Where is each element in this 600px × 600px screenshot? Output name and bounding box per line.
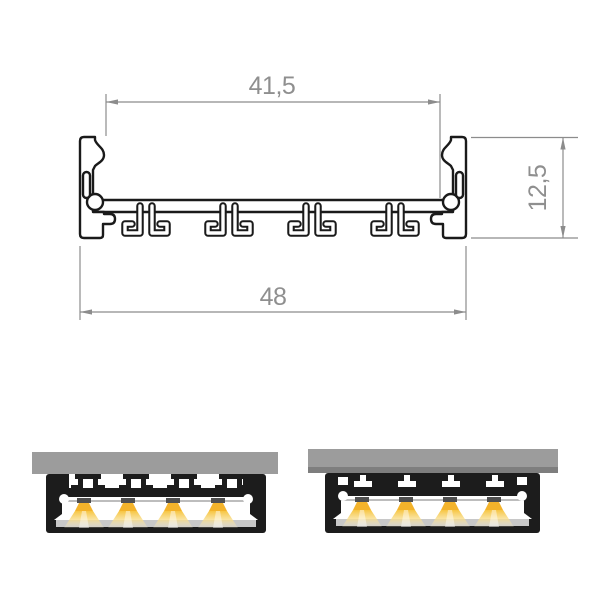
dimension-inner-width: 41,5 <box>106 72 440 198</box>
right-wall-slot <box>456 172 463 198</box>
wall-screw-port <box>243 494 253 504</box>
dimension-label-outer-width: 48 <box>260 283 287 311</box>
dimension-height: 12,5 <box>471 138 578 239</box>
mounted-profile-illustration-left <box>32 452 278 533</box>
wall-screw-port <box>338 491 348 501</box>
mount-surface-edge <box>308 467 558 473</box>
mounted-profile-illustration-right <box>308 449 558 533</box>
cross-section-drawing <box>80 137 466 238</box>
dimension-label-inner-width: 41,5 <box>249 72 296 100</box>
wall-screw-port <box>59 494 69 504</box>
wall-screw-port <box>517 491 527 501</box>
mount-surface <box>308 449 558 468</box>
mount-surface <box>32 452 278 474</box>
dimension-label-height: 12,5 <box>524 165 552 212</box>
left-wall-slot <box>83 172 90 198</box>
profile-drawing-canvas: 41,5 48 12,5 <box>0 0 600 600</box>
dimension-outer-width: 48 <box>80 246 466 320</box>
